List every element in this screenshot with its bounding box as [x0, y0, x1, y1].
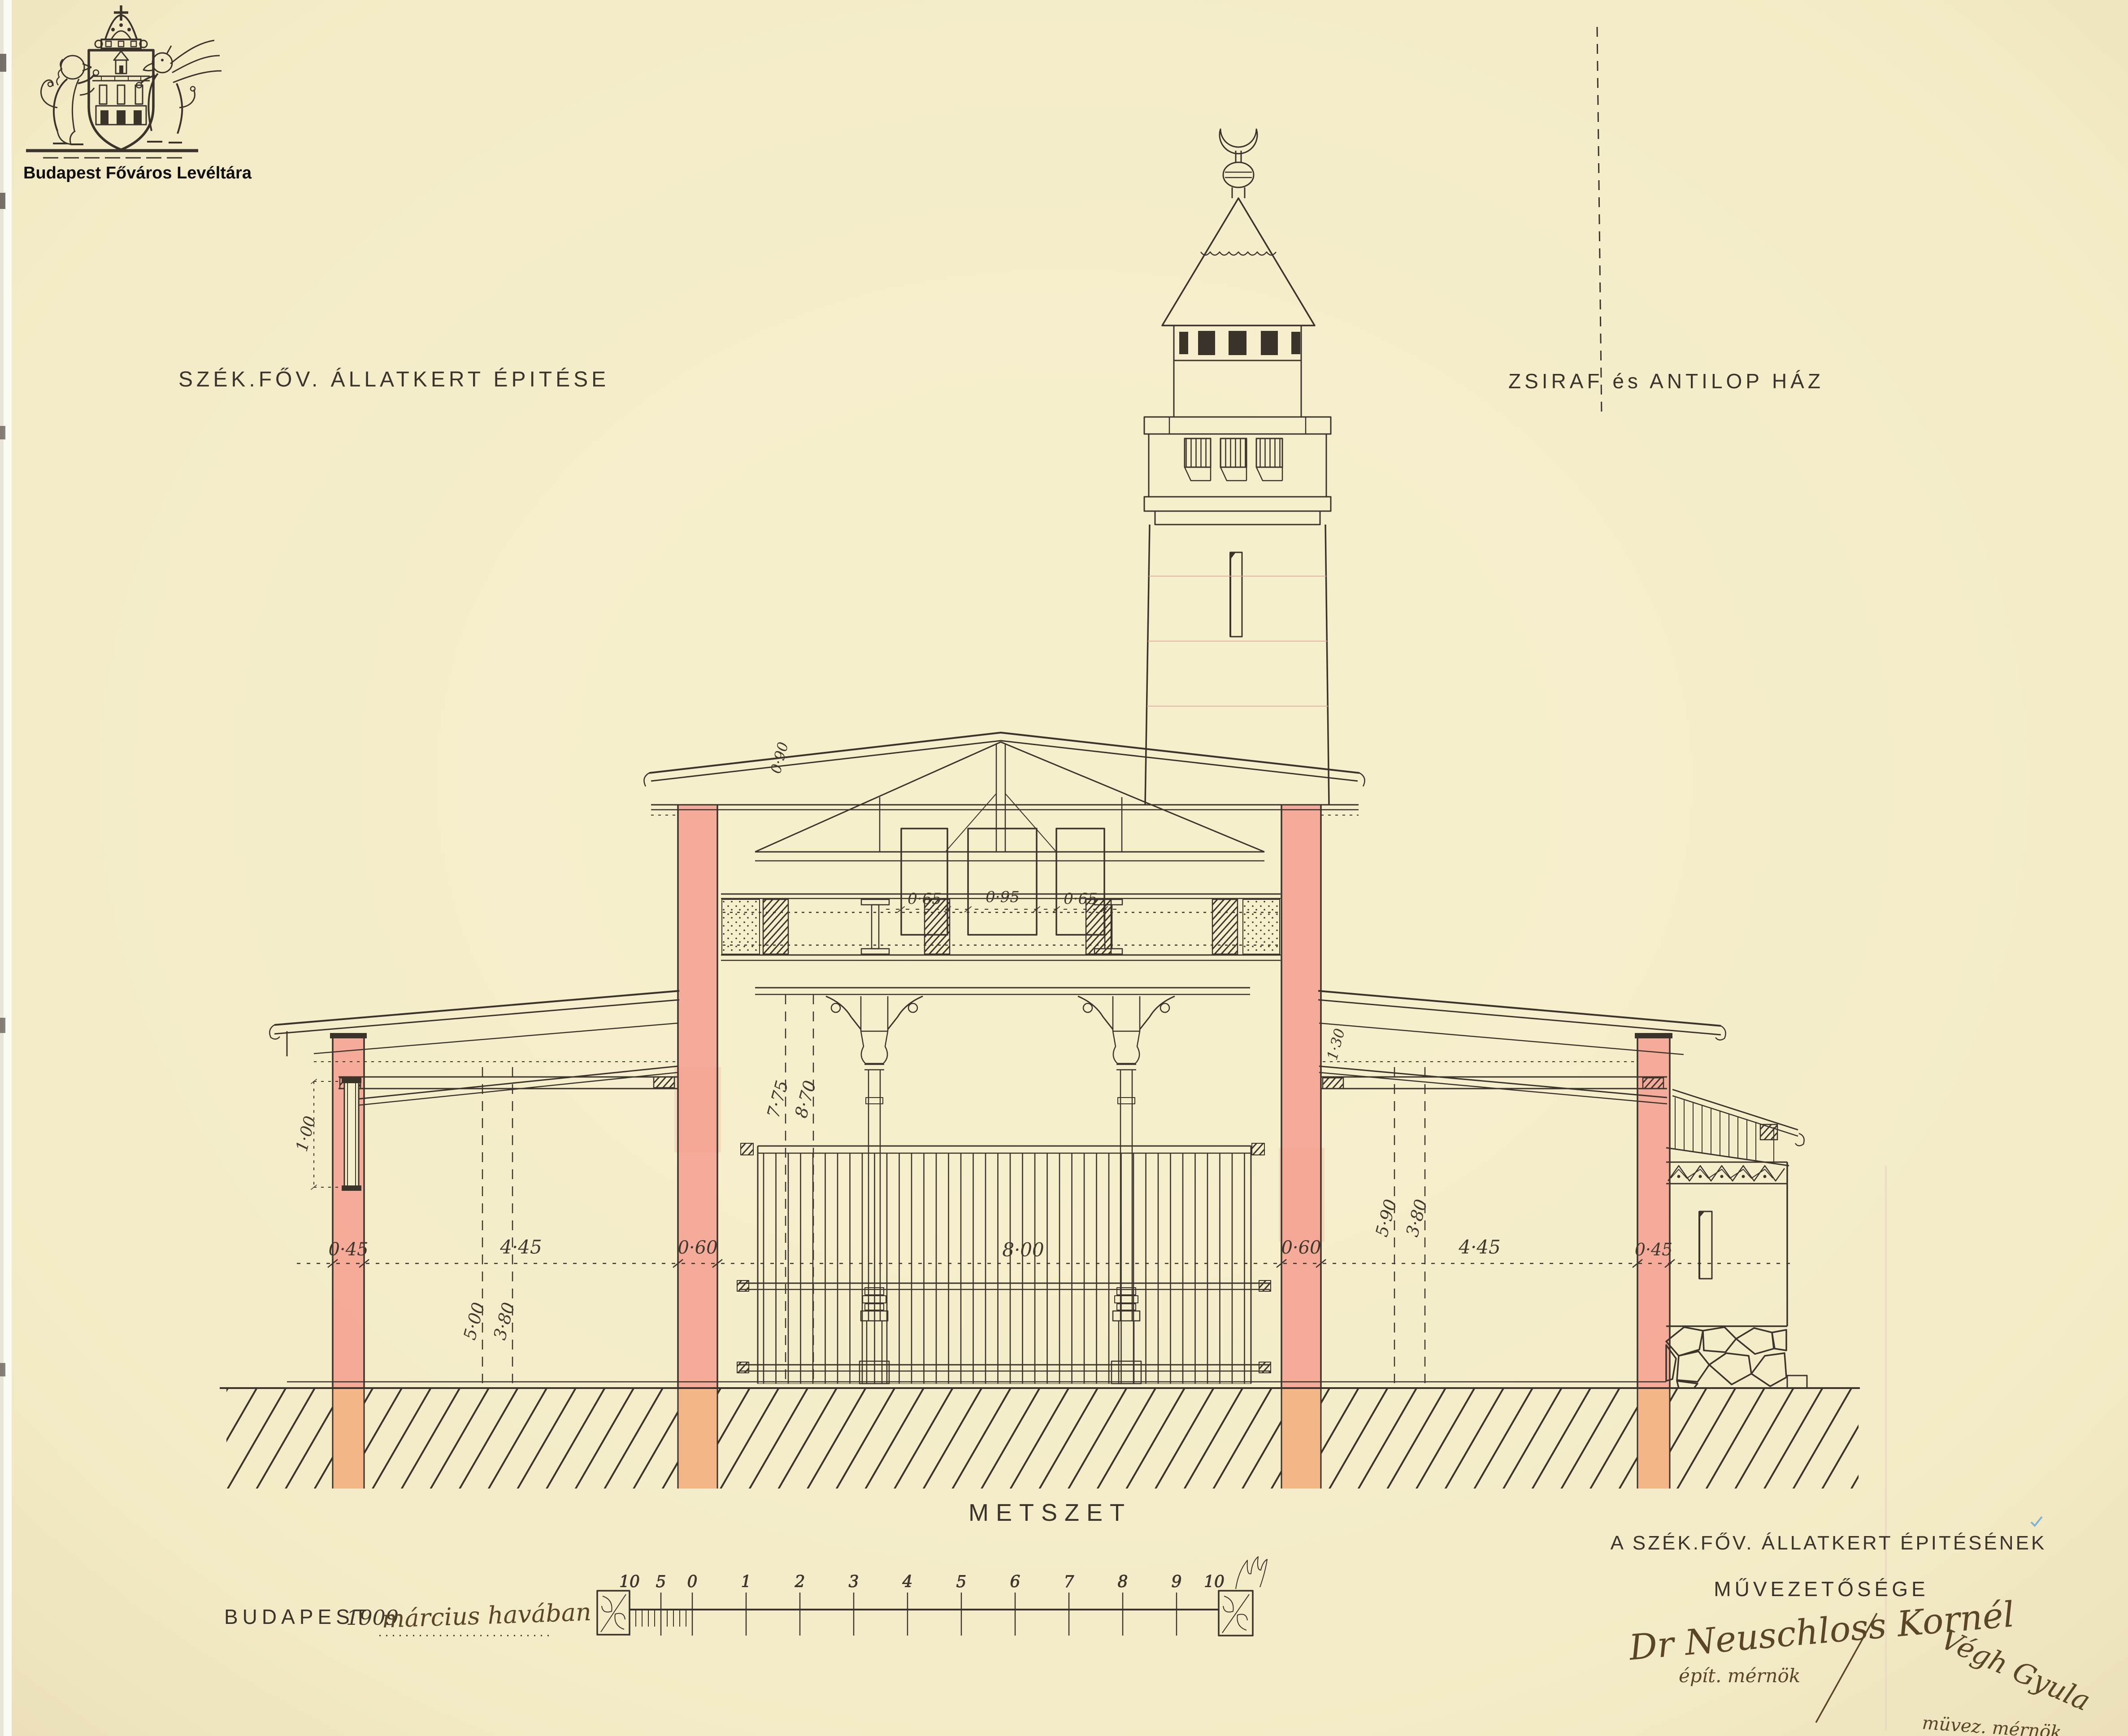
scale-label: 9 [1172, 1573, 1182, 1591]
scale-label: 8 [1118, 1573, 1128, 1591]
dim-label: 8·00 [1002, 1239, 1044, 1261]
dim-label: 0·65 [1064, 890, 1098, 908]
scale-label: 0 [687, 1573, 698, 1591]
section-drawing-canvas: Budapest Főváros Levéltára SZÉK.FŐV. ÁLL… [0, 0, 2128, 1736]
scale-label: 5 [956, 1573, 967, 1591]
office-line-2: MŰVEZETŐSÉGE [1714, 1577, 1928, 1601]
scale-label: 6 [1010, 1573, 1021, 1591]
scale-label: 2 [795, 1573, 805, 1591]
office-line-1: A SZÉK.FŐV. ÁLLATKERT ÉPITÉSÉNEK [1611, 1532, 2047, 1554]
earth-hatch [226, 1389, 1859, 1489]
title-building: ZSIRAF és ANTILOP HÁZ [1508, 369, 1824, 393]
dim-label: 0·45 [1635, 1240, 1673, 1259]
drawing-type-label: METSZET [968, 1499, 1132, 1526]
scale-label: 10 [619, 1573, 640, 1591]
scale-label: 7 [1064, 1573, 1074, 1591]
scale-label: 4 [902, 1573, 913, 1591]
title-project: SZÉK.FŐV. ÁLLATKERT ÉPITÉSE [178, 368, 609, 391]
dim-label: 0·95 [986, 888, 1020, 906]
dim-label: 0·60 [677, 1237, 717, 1258]
scale-label: 3 [849, 1573, 859, 1591]
left-wall-window [342, 1078, 361, 1191]
ground [220, 1382, 1860, 1489]
cage-grille [737, 1143, 1271, 1384]
blueprint-sheet: Budapest Főváros Levéltára SZÉK.FŐV. ÁLL… [0, 0, 2128, 1736]
scale-label: 1 [741, 1573, 751, 1591]
dim-label: 0·60 [1281, 1237, 1321, 1258]
dim-label: 4·45 [1458, 1236, 1501, 1258]
dim-label: 4·45 [499, 1236, 542, 1258]
scale-label: 10 [1204, 1573, 1225, 1591]
dim-label: 0·65 [908, 890, 942, 908]
architect-title: épít. mérnök [1679, 1665, 1800, 1687]
archive-name: Budapest Főváros Levéltára [23, 164, 252, 182]
dim-label: 0·45 [328, 1239, 368, 1260]
scale-label: 5 [656, 1573, 666, 1591]
